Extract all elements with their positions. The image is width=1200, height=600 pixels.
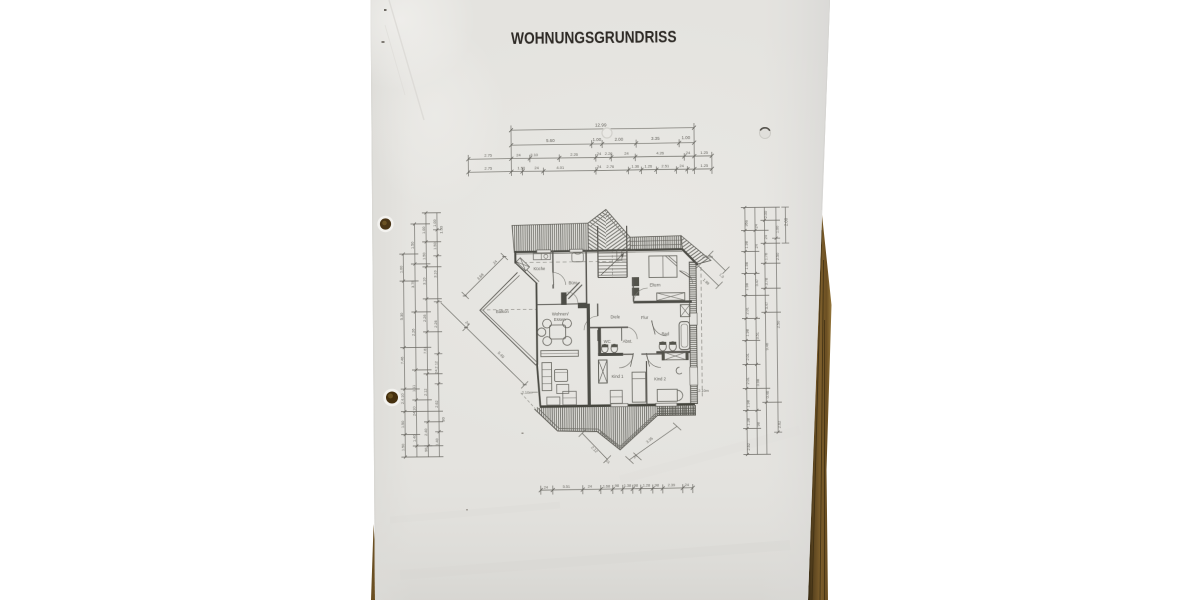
svg-text:Diele: Diele [610,314,620,319]
svg-text:1.00: 1.00 [593,137,602,142]
svg-text:Küche: Küche [533,266,546,271]
svg-text:2.10m: 2.10m [702,255,713,259]
svg-text:98: 98 [655,483,659,487]
svg-text:1.40: 1.40 [413,435,417,442]
svg-text:1.00: 1.00 [433,219,437,226]
svg-text:2.00: 2.00 [615,137,624,142]
svg-text:3.10: 3.10 [433,270,437,277]
svg-text:7.46: 7.46 [400,357,404,364]
svg-text:1.25: 1.25 [700,163,709,168]
svg-text:1.50: 1.50 [517,165,526,170]
svg-text:2.62: 2.62 [778,421,782,428]
svg-text:2.00: 2.00 [764,211,768,218]
svg-text:1.50: 1.50 [401,444,405,451]
svg-text:98: 98 [634,484,638,488]
svg-text:90: 90 [424,448,428,452]
svg-text:2.01: 2.01 [746,377,750,384]
svg-text:3.47: 3.47 [755,279,759,286]
svg-text:0.46: 0.46 [766,391,770,398]
svg-text:1.98: 1.98 [746,329,750,336]
svg-text:24: 24 [685,483,689,487]
svg-text:2.00: 2.00 [783,217,788,226]
svg-text:3.78: 3.78 [765,278,769,285]
svg-text:2.10m: 2.10m [522,391,533,395]
svg-text:WC: WC [604,339,611,344]
svg-text:2.62: 2.62 [435,400,439,407]
svg-text:2.75: 2.75 [484,166,493,171]
svg-text:2.40: 2.40 [424,428,428,435]
svg-text:12.99: 12.99 [595,122,607,127]
svg-text:2.26: 2.26 [412,329,416,336]
svg-text:2.26: 2.26 [423,314,427,321]
svg-text:1.98: 1.98 [747,400,751,407]
svg-text:98: 98 [757,422,761,426]
svg-text:36a: 36a [745,219,749,226]
svg-text:24: 24 [755,224,759,228]
svg-text:Flur: Flur [641,315,649,320]
svg-text:24.10: 24.10 [412,406,416,416]
svg-text:24.2.12: 24.2.12 [434,361,438,374]
svg-text:1.76: 1.76 [764,253,768,260]
svg-text:5.60: 5.60 [546,138,555,143]
svg-text:2.12: 2.12 [424,388,428,395]
svg-text:1.38: 1.38 [747,418,751,425]
svg-text:3.98: 3.98 [756,379,760,386]
svg-text:1.50: 1.50 [422,252,426,259]
svg-text:1.40: 1.40 [435,438,439,445]
svg-text:24: 24 [544,485,548,489]
svg-text:2.10m: 2.10m [698,389,709,393]
svg-text:1.98: 1.98 [745,283,749,290]
svg-text:2.26: 2.26 [605,151,614,156]
svg-text:3.35: 3.35 [651,136,660,141]
svg-text:2.75: 2.75 [484,153,493,158]
svg-text:5.51: 5.51 [563,485,570,489]
svg-text:1.00: 1.00 [682,135,691,140]
svg-text:2.62: 2.62 [747,443,751,450]
svg-text:2.50: 2.50 [776,253,780,260]
svg-text:24: 24 [755,244,759,248]
svg-text:2.01: 2.01 [746,353,750,360]
svg-text:1.26: 1.26 [644,163,653,168]
svg-text:3.10: 3.10 [530,152,539,157]
svg-text:1.68: 1.68 [603,484,610,488]
svg-text:Eltern: Eltern [650,282,662,287]
svg-text:1.00: 1.00 [438,225,443,234]
svg-text:1.50: 1.50 [401,421,405,428]
svg-text:2.26: 2.26 [570,152,579,157]
svg-text:Abst.: Abst. [623,339,633,344]
svg-text:1.50: 1.50 [411,242,415,249]
svg-text:1.25: 1.25 [700,150,709,155]
svg-text:1.50: 1.50 [433,242,437,249]
svg-text:3.51: 3.51 [756,332,760,339]
svg-text:24: 24 [588,485,592,489]
svg-text:1.36: 1.36 [631,164,640,169]
svg-text:3.10: 3.10 [423,277,427,284]
svg-text:5.30: 5.30 [400,313,404,320]
svg-text:1.28: 1.28 [643,484,650,488]
svg-text:9.46: 9.46 [765,343,769,350]
svg-text:2.39: 2.39 [668,483,675,487]
svg-text:3.47: 3.47 [765,302,769,309]
svg-text:1.00: 1.00 [422,226,426,233]
svg-text:1.00: 1.00 [399,266,403,273]
svg-text:2.01: 2.01 [746,307,750,314]
svg-text:4.01: 4.01 [556,165,565,170]
svg-text:1.98: 1.98 [745,241,749,248]
svg-text:2.50: 2.50 [777,321,781,328]
svg-text:1.98: 1.98 [745,262,749,269]
svg-text:1.00: 1.00 [776,226,780,233]
svg-text:98: 98 [615,484,619,488]
svg-text:4.26: 4.26 [656,150,665,155]
svg-text:24: 24 [764,235,768,239]
svg-text:WOHNUNGSGRUNDRISS: WOHNUNGSGRUNDRISS [511,27,677,48]
svg-text:Kind 2: Kind 2 [654,376,667,381]
svg-text:Kind 1: Kind 1 [612,374,625,379]
svg-text:1.38: 1.38 [624,484,631,488]
svg-text:2.76: 2.76 [606,164,615,169]
svg-text:2.51: 2.51 [661,163,670,168]
svg-text:1.11: 1.11 [412,385,416,392]
svg-text:2.26: 2.26 [434,320,438,327]
svg-text:2.4.10: 2.4.10 [401,394,405,405]
svg-text:7.61: 7.61 [423,346,427,353]
svg-text:Wohnen/: Wohnen/ [552,311,570,316]
svg-text:Balkon: Balkon [496,309,510,314]
svg-text:3.75: 3.75 [411,281,415,288]
